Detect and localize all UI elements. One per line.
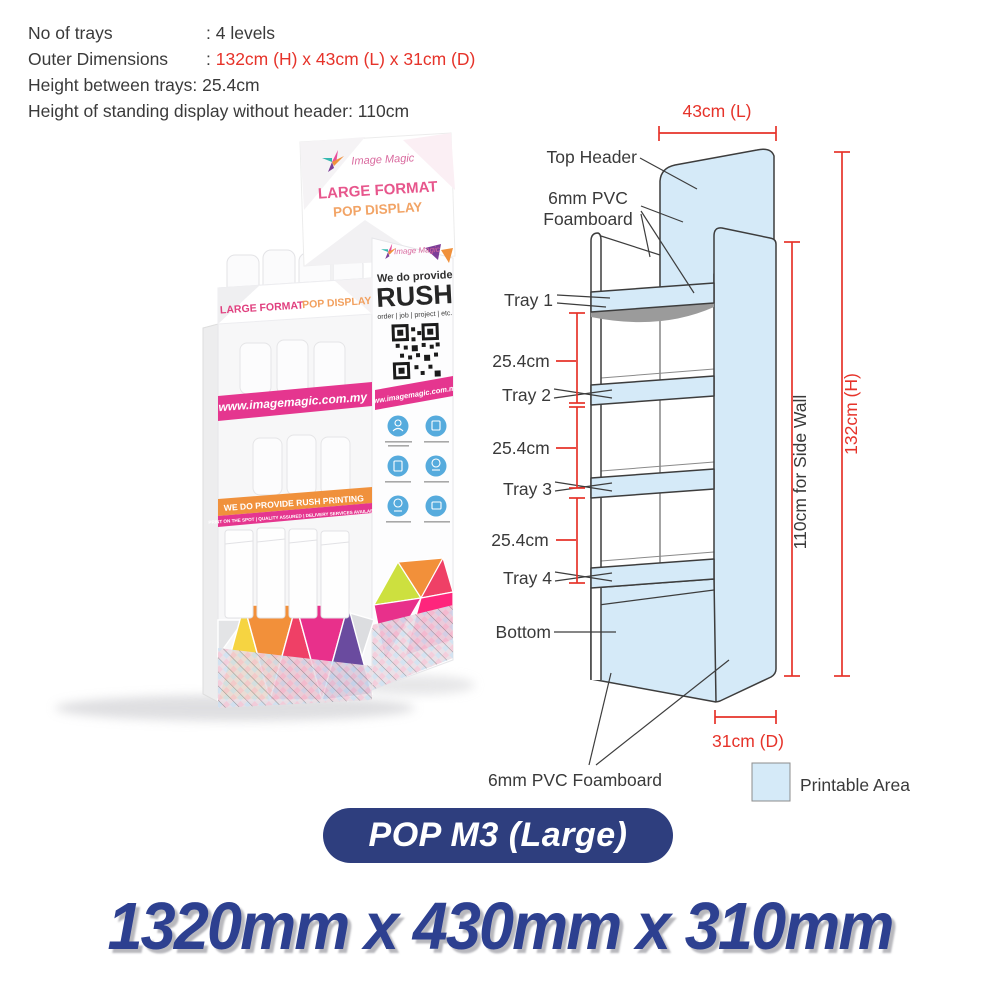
spacing-label-3: 25.4cm [491, 530, 548, 550]
spec-value-outer-dimensions: 132cm (H) x 43cm (L) x 31cm (D) [216, 46, 476, 72]
width-dimension-label: 43cm (L) [682, 101, 751, 121]
bottom-label: Bottom [496, 622, 551, 642]
foamboard-bottom-label: 6mm PVC Foamboard [488, 770, 662, 790]
foamboard-label-line2: Foamboard [543, 209, 633, 229]
spacing-label-1: 25.4cm [492, 351, 549, 371]
printable-area-label: Printable Area [800, 775, 910, 795]
height-dimension-label: 132cm (H) [841, 373, 861, 455]
tray2-label: Tray 2 [502, 385, 551, 405]
model-badge-label: POP M3 (Large) [369, 816, 628, 855]
tray4-label: Tray 4 [503, 568, 552, 588]
spec-row-trays: No of trays: 4 levels [28, 20, 475, 46]
front-face: LARGE FORMAT POP DISPLAY www.imagemagic.… [208, 278, 379, 708]
spec-value: : 25.4cm [192, 72, 259, 98]
tray3-label: Tray 3 [503, 479, 552, 499]
spec-row-tray-height: Height between trays: 25.4cm [28, 72, 475, 98]
technical-diagram: 43cm (L) Top Header 6mm PVC Foamboard Tr… [440, 90, 1000, 802]
spec-label: Outer Dimensions [28, 46, 206, 72]
foamboard-label-line1: 6mm PVC [548, 188, 628, 208]
spec-label: Height between trays [28, 72, 192, 98]
printable-area-swatch [752, 763, 790, 801]
overall-dimensions-text: 1320mm x 430mm x 310mm [30, 888, 970, 965]
depth-dimension-label: 31cm (D) [712, 731, 784, 751]
spec-separator: : [206, 46, 216, 72]
product-photo: Image Magic LARGE FORMAT POP DISPLAY Ima… [85, 100, 475, 750]
spec-row-outer-dimensions: Outer Dimensions: 132cm (H) x 43cm (L) x… [28, 46, 475, 72]
page: No of trays: 4 levels Outer Dimensions: … [0, 0, 1000, 1000]
spec-value: : 4 levels [206, 20, 275, 46]
side-wall-panel [714, 228, 776, 702]
spacing-label-2: 25.4cm [492, 438, 549, 458]
top-header-label: Top Header [547, 147, 638, 167]
tray1-label: Tray 1 [504, 290, 553, 310]
left-edge [203, 324, 218, 702]
model-badge: POP M3 (Large) [323, 808, 673, 863]
spec-label: No of trays [28, 20, 206, 46]
side-wall-dimension-label: 110cm for Side Wall [790, 395, 810, 550]
product-pouches-row3 [253, 435, 350, 495]
